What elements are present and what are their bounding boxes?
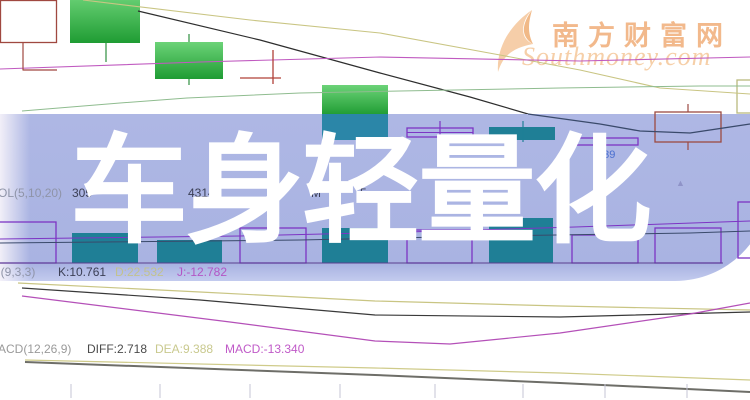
- page-title: 车身轻量化: [70, 131, 750, 255]
- watermark: 南方财富网 Southmoney.com: [488, 8, 748, 78]
- candle-green-2: [70, 0, 140, 43]
- kdj-k-line: [22, 288, 750, 317]
- ma-green-top: [22, 86, 750, 111]
- candle-hollow-red-1: [1, 1, 57, 43]
- candle-green-4-top: [322, 85, 388, 115]
- macd-dea-value: DEA:9.388: [155, 342, 213, 356]
- macd-macd-value: MACD:-13.340: [225, 342, 304, 356]
- macd-indicator-row: MACD(12,26,9) DIFF:2.718 DEA:9.388 MACD:…: [0, 342, 750, 358]
- kdj-indicator-row: KDJ(9,3,3) K:10.761 D:22.532 J:-12.782: [0, 265, 750, 281]
- kdj-j-line: [22, 296, 750, 344]
- macd-label: MACD(12,26,9): [0, 342, 71, 356]
- red-step-line: [23, 43, 57, 70]
- kdj-d-value: D:22.532: [115, 265, 164, 279]
- watermark-site-url: Southmoney.com: [522, 42, 711, 72]
- kdj-label: KDJ(9,3,3): [0, 265, 35, 279]
- candle-green-3: [155, 42, 223, 79]
- macd-diff-value: DIFF:2.718: [87, 342, 147, 356]
- kdj-k-value: K:10.761: [58, 265, 106, 279]
- vol-label: VOL(5,10,20): [0, 186, 62, 200]
- box-khaki-partial: [737, 80, 750, 113]
- macd-diff-line: [25, 362, 750, 392]
- x-axis-ticks: [71, 384, 687, 398]
- macd-dea-line: [25, 360, 750, 380]
- kdj-d-line: [18, 283, 750, 310]
- stock-chart-screenshot: 南方财富网 Southmoney.com VOL(5,10,20) 305 43…: [0, 0, 750, 400]
- kdj-j-value: J:-12.782: [177, 265, 227, 279]
- price-line-upper: [138, 11, 528, 114]
